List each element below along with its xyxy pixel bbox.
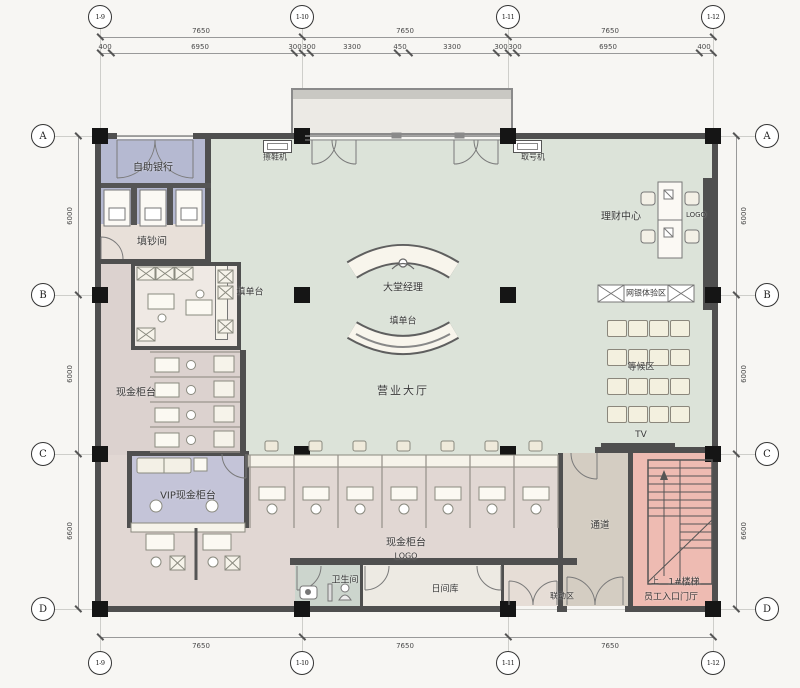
- grid-bubble-bottom-4: 1-12: [701, 651, 725, 675]
- dim-top-bay-3: 7650: [601, 27, 619, 35]
- room-label-day-vault: 日间库: [431, 582, 458, 595]
- room-label-interlock: 联动区: [550, 591, 574, 602]
- stair-linework: [648, 460, 712, 584]
- grid-bubble-top-3: 1-11: [496, 5, 520, 29]
- room-label-cash-counter-left: 现金柜台: [116, 384, 156, 399]
- glass-lines: [117, 133, 500, 140]
- dim-top-bay-2: 7650: [396, 27, 414, 35]
- room-label-cash-filling: 填钞间: [137, 233, 167, 248]
- dim-line-top-1: [100, 37, 713, 38]
- atm-machines: [101, 183, 211, 226]
- dim-top-sub: 300: [508, 43, 521, 51]
- dim-left-row-3: 6600: [66, 522, 74, 540]
- dim-line-top-2: [100, 53, 713, 54]
- grid-bubble-right-A: A: [755, 124, 779, 148]
- dim-top-sub: 300: [288, 43, 301, 51]
- dim-bottom-bay-1: 7650: [192, 642, 210, 650]
- room-label-self-service-bank: 自助银行: [133, 159, 173, 174]
- grid-bubble-right-C: C: [755, 442, 779, 466]
- room-label-stair-1: 1#楼梯: [668, 575, 699, 588]
- dim-top-sub: 300: [494, 43, 507, 51]
- dim-top-sub: 400: [697, 43, 710, 51]
- dim-top-sub: 450: [393, 43, 406, 51]
- label-shoe-polisher: 擦鞋机: [263, 152, 287, 163]
- dim-right-row-2: 6000: [740, 365, 748, 383]
- grid-bubble-top-2: 1-10: [290, 5, 314, 29]
- room-label-lobby-manager: 大堂经理: [383, 279, 423, 294]
- room-label-cash-counter-bottom: 现金柜台: [386, 534, 426, 549]
- form-counter-desk: [352, 330, 454, 347]
- bottom-teller-counter: [248, 441, 558, 528]
- dim-top-sub: 6950: [191, 43, 209, 51]
- room-label-form-counter-center: 填单台: [389, 314, 416, 327]
- label-ticket-machine: 取号机: [521, 152, 545, 163]
- dim-bottom-bay-2: 7650: [396, 642, 414, 650]
- label-stair-up: 上: [651, 576, 659, 587]
- dim-top-sub: 3300: [443, 43, 461, 51]
- dim-top-sub: 400: [98, 43, 111, 51]
- grid-bubble-bottom-3: 1-11: [496, 651, 520, 675]
- grid-bubble-right-D: D: [755, 597, 779, 621]
- grid-bubble-left-A: A: [31, 124, 55, 148]
- grid-bubble-top-1: 1-9: [88, 5, 112, 29]
- dim-line-right: [736, 136, 737, 609]
- office-furniture: [137, 267, 233, 341]
- room-label-vip-cash: VIP现金柜台: [160, 487, 216, 502]
- grid-bubble-left-D: D: [31, 597, 55, 621]
- grid-bubble-top-4: 1-12: [701, 5, 725, 29]
- dim-top-sub: 3300: [343, 43, 361, 51]
- room-label-ebank-zone: 网银体验区: [626, 288, 666, 299]
- dim-left-row-1: 6000: [66, 207, 74, 225]
- room-label-business-hall: 营业大厅: [377, 382, 429, 398]
- grid-bubble-bottom-2: 1-10: [290, 651, 314, 675]
- left-teller-cubicles: [150, 352, 240, 452]
- room-label-waiting-area: 等候区: [627, 360, 654, 373]
- grid-bubble-left-C: C: [31, 442, 55, 466]
- room-label-washroom: 卫生间: [331, 573, 358, 586]
- label-tv: TV: [635, 430, 647, 440]
- grid-bubble-bottom-1: 1-9: [88, 651, 112, 675]
- lobby-manager-desk: [352, 254, 454, 270]
- room-label-wealth-center: 理财中心: [601, 208, 641, 223]
- floor-plan-canvas: 自助银行 填钞间 填单台 大堂经理 填单台 营业大厅 理财中心 LOGO 网银体…: [0, 0, 800, 688]
- dim-bottom-bay-3: 7650: [601, 642, 619, 650]
- room-label-staff-entrance: 员工入口门厅: [644, 590, 698, 603]
- grid-bubble-right-B: B: [755, 283, 779, 307]
- room-label-form-counter-left: 填单台: [236, 285, 263, 298]
- dim-line-bottom: [100, 637, 713, 638]
- dim-top-sub: 6950: [599, 43, 617, 51]
- room-label-corridor: 通道: [590, 517, 609, 531]
- dim-right-row-1: 6000: [740, 207, 748, 225]
- dim-left-row-2: 6000: [66, 365, 74, 383]
- dim-top-sub: 300: [302, 43, 315, 51]
- dim-top-bay-1: 7650: [192, 27, 210, 35]
- label-logo-bottom: LOGO: [395, 552, 418, 561]
- washroom-fixtures: [300, 584, 351, 601]
- vip-furniture: [131, 458, 245, 580]
- dim-line-left: [78, 136, 79, 609]
- grid-bubble-left-B: B: [31, 283, 55, 307]
- label-logo-wall: LOGO: [686, 211, 706, 219]
- dim-right-row-3: 6600: [740, 522, 748, 540]
- wealth-center-desks: [641, 182, 699, 258]
